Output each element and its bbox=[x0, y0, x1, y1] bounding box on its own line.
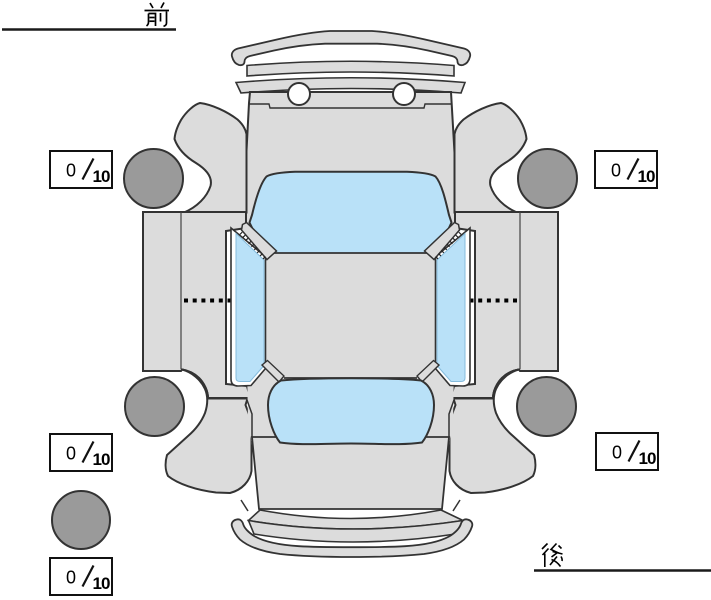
svg-text:10: 10 bbox=[638, 167, 655, 186]
svg-text:0: 0 bbox=[66, 444, 76, 464]
svg-text:10: 10 bbox=[93, 574, 110, 593]
svg-text:10: 10 bbox=[639, 449, 656, 468]
svg-text:10: 10 bbox=[93, 450, 110, 469]
svg-text:0: 0 bbox=[66, 568, 76, 588]
svg-text:0: 0 bbox=[612, 443, 622, 463]
svg-text:10: 10 bbox=[93, 167, 110, 186]
svg-text:0: 0 bbox=[611, 161, 621, 181]
svg-text:0: 0 bbox=[66, 161, 76, 181]
